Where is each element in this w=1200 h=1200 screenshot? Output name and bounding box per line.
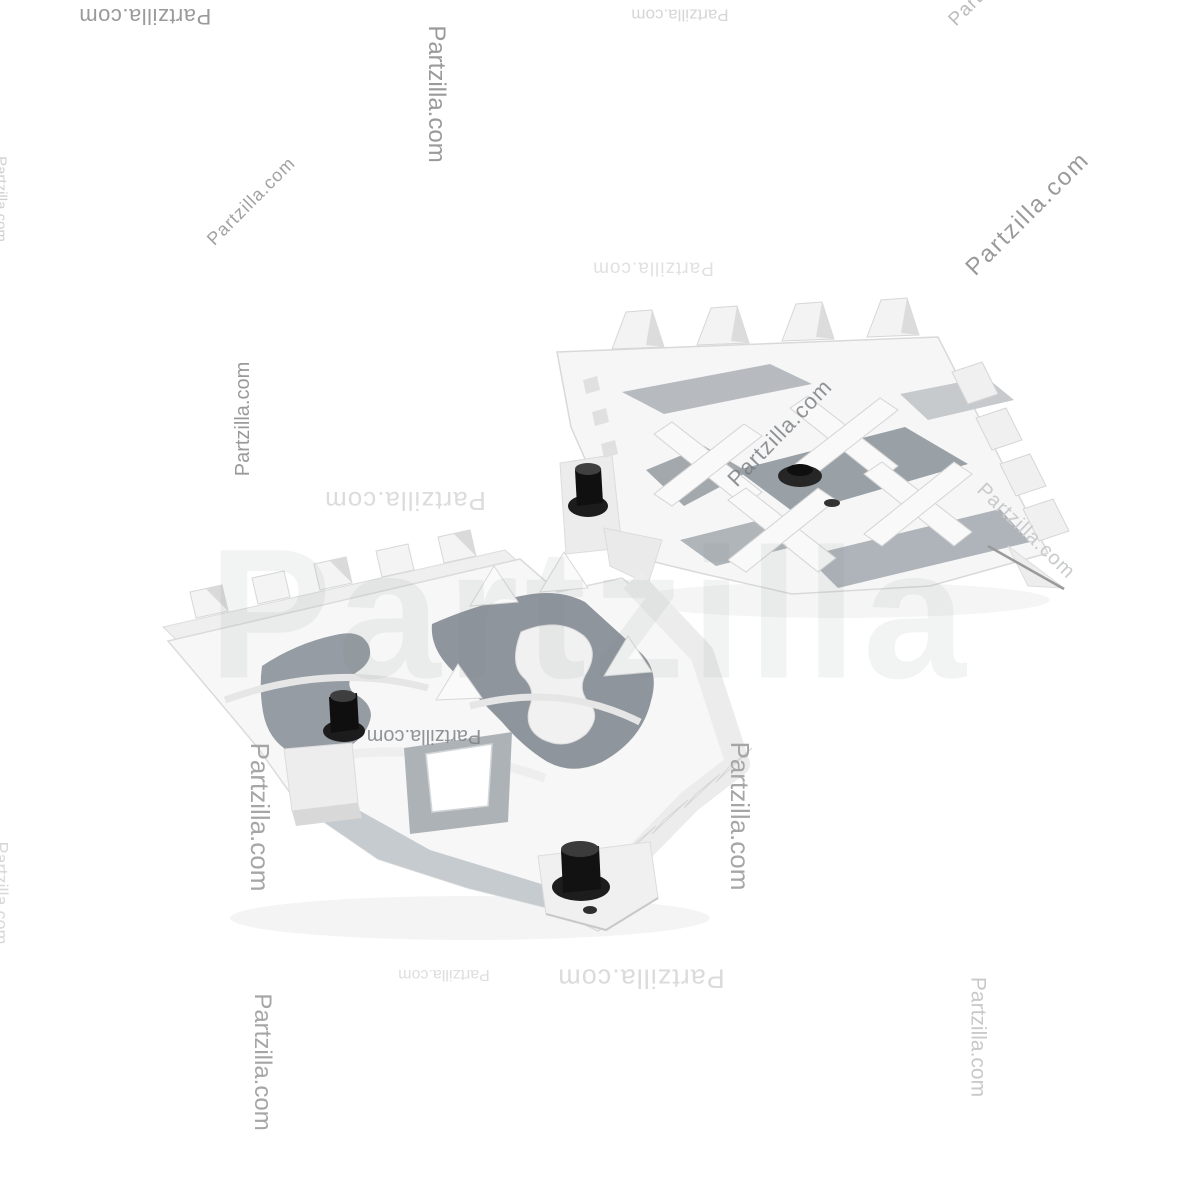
watermark-text: Partzilla.com — [727, 742, 753, 891]
watermark-text: Partzilla.com — [557, 965, 725, 992]
watermark-text: Partzilla.com — [250, 993, 274, 1130]
watermark-giant: Partzilla — [208, 523, 971, 708]
footpeg-lower-window — [426, 744, 492, 812]
watermark-text: Partzilla.com — [324, 488, 486, 514]
watermark-text: Partzilla.com — [247, 743, 273, 892]
watermark-text: Partzilla.com — [424, 25, 448, 162]
footpeg-lower-foot-tab — [284, 743, 358, 811]
watermark-text: Partzilla.com — [592, 259, 714, 278]
watermark-text: Partzilla.com — [968, 977, 989, 1097]
product-image: Partzilla Partzilla.com Partzilla.com Pa… — [0, 0, 1200, 1200]
watermark-text: Partzilla.com — [398, 966, 490, 982]
watermark-text: Partzilla.com — [0, 841, 10, 944]
watermark-text: Partzilla.com — [233, 362, 253, 476]
watermark-text: Partzilla.com — [79, 5, 211, 27]
watermark-text: Partzilla.com — [631, 7, 728, 24]
watermark-text: Partzilla.com — [367, 726, 481, 746]
watermark-text: Partzilla.com — [0, 156, 9, 242]
